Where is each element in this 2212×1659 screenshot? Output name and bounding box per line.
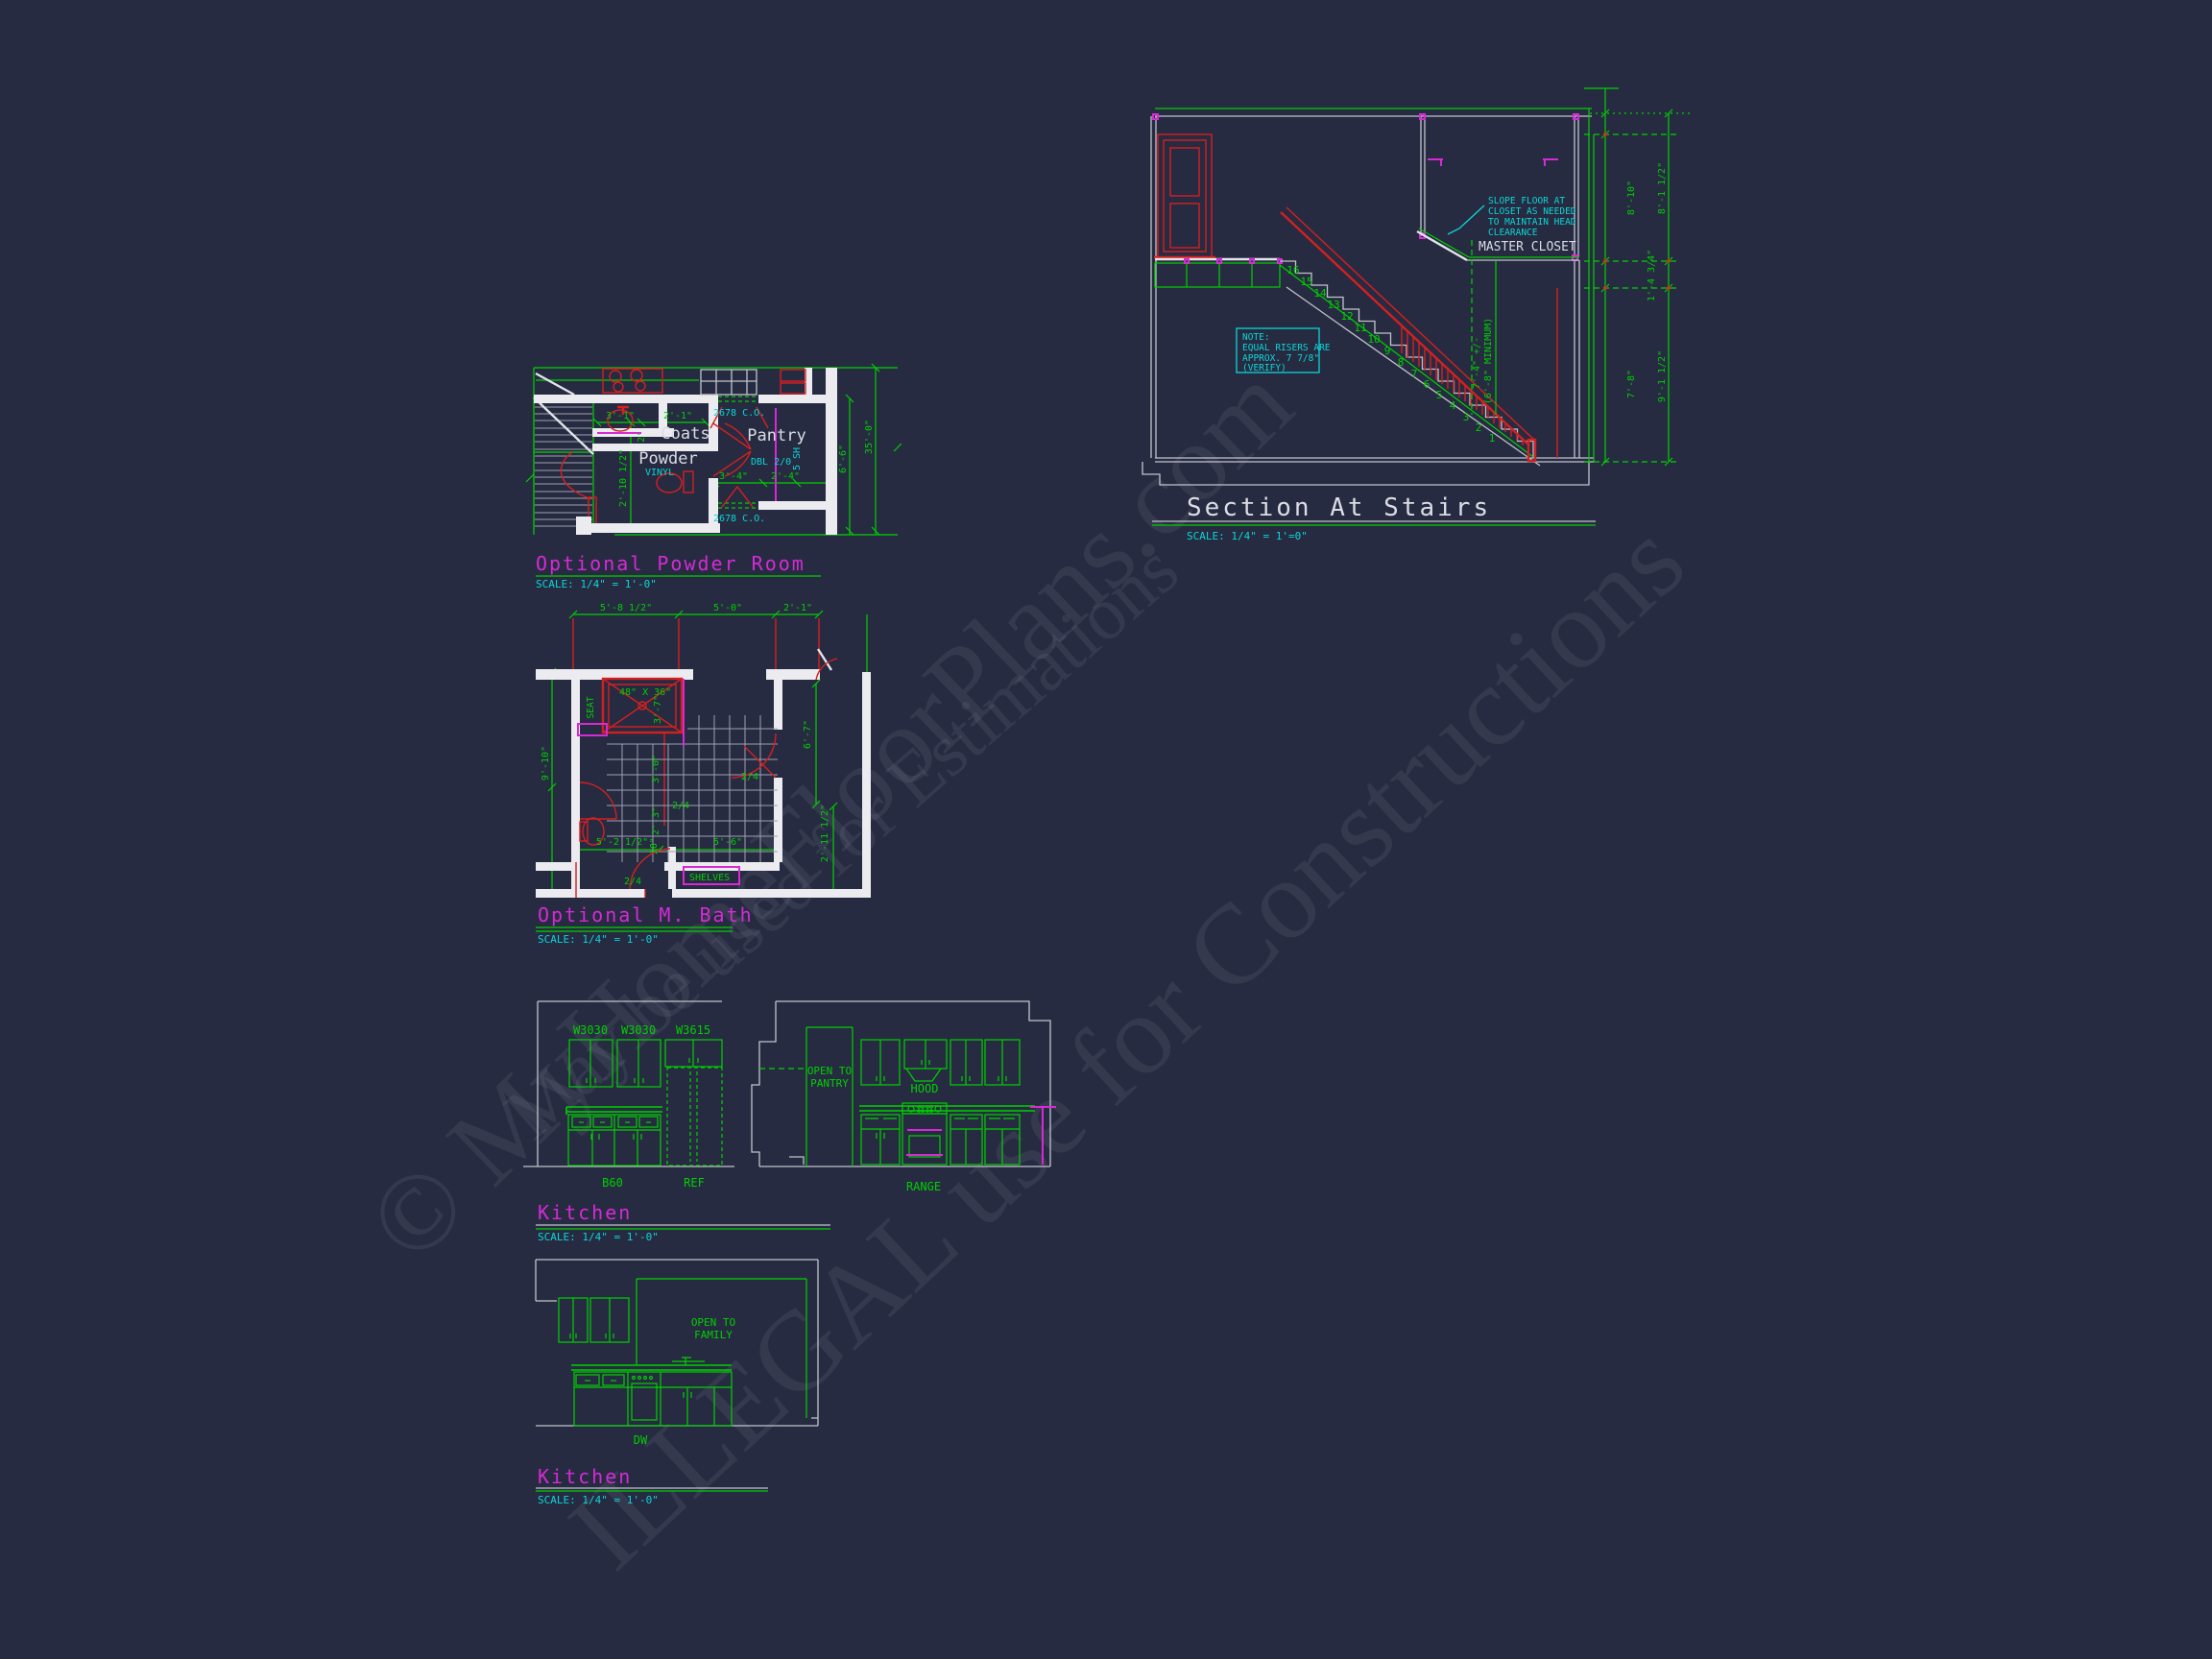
slope-note-line: CLOSET AS NEEDED (1488, 206, 1576, 217)
cabinet-label: W3030 (621, 1023, 656, 1037)
wall-cabinets-3 (559, 1298, 629, 1342)
dim: 3'-1" (606, 411, 635, 421)
kitchen-scale: SCALE: 1/4" = 1'-0" (538, 1494, 659, 1506)
kitchen-scale: SCALE: 1/4" = 1'-0" (538, 1231, 659, 1243)
powder-room-plan: Coats Pantry Powder VINYL DBL 2/0 5 SH 2… (526, 364, 902, 590)
dim: 6'-6" (838, 445, 849, 473)
kitchen-title-1: Kitchen SCALE: 1/4" = 1'-0" (536, 1201, 830, 1243)
range-label: RANGE (906, 1180, 941, 1193)
open-to-pantry-label: PANTRY (810, 1077, 849, 1090)
riser-8: 8 (1398, 356, 1405, 369)
dim: 5'-6" (713, 837, 742, 848)
ref-label: REF (684, 1176, 705, 1190)
watermark-illegal: ILLEGAL use for Constructions (545, 497, 1707, 1593)
powder-room-scale: SCALE: 1/4" = 1'-0" (536, 578, 657, 590)
riser-6: 6 (1424, 378, 1431, 391)
shower-size-label: 48" X 36" (619, 687, 671, 698)
powder-room-title: Optional Powder Room (536, 552, 805, 575)
dim: 2'-3" (651, 806, 661, 835)
riser-note-line: (VERIFY) (1242, 363, 1286, 373)
riser-9: 9 (1384, 345, 1391, 357)
dim: 3'-4" (719, 471, 748, 482)
dim: 2' (637, 431, 647, 442)
open-to-family-label: FAMILY (694, 1329, 733, 1341)
riser-14: 14 (1313, 287, 1327, 300)
door-size-label: 2/4 (672, 801, 689, 811)
dim-headroom-min: (6'-8" MINIMUM) (1483, 318, 1494, 404)
riser-1: 1 (1489, 432, 1496, 445)
slope-note-line: SLOPE FLOOR AT (1488, 196, 1565, 206)
riser-11: 11 (1354, 322, 1366, 334)
riser-4: 4 (1450, 399, 1456, 412)
riser-5: 5 (1436, 389, 1443, 401)
section-right-dims: 8'-10" 8'-1 1/2" 1'-4 3/4" 7'-8" 9'-1 1/… (1584, 88, 1690, 466)
dw-label: DW (634, 1433, 648, 1447)
dim: 8'-10" (1626, 180, 1637, 215)
dim: 3'-0" (651, 755, 661, 783)
opening-label-top: 2678 C.O. (713, 408, 765, 419)
door-size-label: 2/4 (741, 772, 758, 782)
dim: 35'-0" (864, 420, 875, 454)
dim-headroom: 7'-4" +/- (1472, 337, 1482, 389)
dim: 5'-8 1/2" (600, 603, 652, 613)
dim: 2'-1" (663, 411, 692, 421)
seat-label: SEAT (586, 696, 596, 718)
riser-10: 10 (1367, 333, 1380, 346)
finish-label-vinyl: VINYL (645, 468, 674, 478)
kitchen-title: Kitchen (538, 1465, 632, 1488)
riser-3: 3 (1463, 411, 1470, 423)
stairs-section-scale: SCALE: 1/4" = 1'=0" (1187, 530, 1308, 542)
dim: 2'-11 1/2" (820, 805, 830, 862)
kitchen-title: Kitchen (538, 1201, 632, 1224)
riser-13: 13 (1327, 299, 1339, 311)
mbath-title: Optional M. Bath (538, 903, 754, 926)
riser-16: 16 (1286, 264, 1299, 276)
riser-note-box: NOTE: EQUAL RISERS ARE APPROX. 7 7/8" (V… (1237, 328, 1331, 373)
dim: 5'-0" (713, 603, 742, 613)
master-closet-label: MASTER CLOSET (1479, 240, 1576, 254)
section-door (1154, 134, 1215, 257)
room-label-pantry: Pantry (747, 426, 805, 445)
dim: 7'-8" (1626, 370, 1637, 398)
dim: 9'-10" (541, 746, 551, 781)
room-label-powder: Powder (638, 449, 697, 469)
mbath-scale: SCALE: 1/4" = 1'-0" (538, 933, 659, 946)
wall-cabinets-2 (861, 1040, 1020, 1085)
cad-sheet: © MyHomeFloorPlans.com May be used for E… (0, 0, 2212, 1659)
refrigerator (667, 1068, 722, 1166)
room-label-coats: Coats (661, 424, 709, 444)
shelf-label-5sh: 5 SH (792, 447, 803, 470)
slope-note-line: TO MAINTAIN HEAD (1488, 217, 1576, 228)
cabinet-label: W3030 (573, 1023, 608, 1037)
hood-label: HOOD (911, 1082, 939, 1095)
powder-kitchen-counter (603, 369, 805, 395)
riser-note-line: NOTE: (1242, 332, 1270, 343)
riser-12: 12 (1340, 310, 1353, 323)
riser-2: 2 (1476, 421, 1482, 434)
watermark: © MyHomeFloorPlans.com May be used for E… (345, 342, 1707, 1593)
dim: 1'-4 3/4" (1647, 250, 1657, 301)
slope-note-line: CLEARANCE (1488, 228, 1538, 238)
dim: 18" (649, 837, 660, 854)
riser-7: 7 (1411, 368, 1418, 380)
cabinet-label: B60 (602, 1176, 623, 1190)
dim: 8'-1 1/2" (1657, 162, 1668, 214)
stairs-section-title: Section At Stairs (1187, 493, 1491, 522)
open-to-pantry-label: OPEN TO (807, 1065, 852, 1077)
dim: 2'-10 1/2" (618, 449, 629, 507)
pantry-opening (806, 1027, 853, 1166)
dim: 2'-1" (783, 603, 812, 613)
open-to-family-label: OPEN TO (691, 1316, 735, 1329)
dim: 2'-4" (771, 471, 800, 482)
landing-guard (1155, 259, 1282, 287)
dim: 3'-7" (653, 695, 663, 724)
cabinet-label: W3615 (676, 1023, 710, 1037)
dim: 6'-7" (803, 720, 813, 749)
closet-rods (1428, 159, 1558, 166)
door-label-dbl: DBL 2/0 (751, 457, 791, 468)
opening-label-bottom: 2678 C.O. (713, 514, 765, 524)
door-size-label: 2/4 (624, 877, 641, 887)
shelves-label: SHELVES (689, 873, 730, 883)
riser-note-line: EQUAL RISERS ARE (1242, 343, 1331, 353)
riser-15: 15 (1300, 276, 1312, 288)
slope-note: SLOPE FLOOR AT CLOSET AS NEEDED TO MAINT… (1448, 196, 1576, 238)
dim: 5'-2 1/2" (596, 837, 648, 848)
dim: 9'-1 1/2" (1657, 350, 1668, 402)
